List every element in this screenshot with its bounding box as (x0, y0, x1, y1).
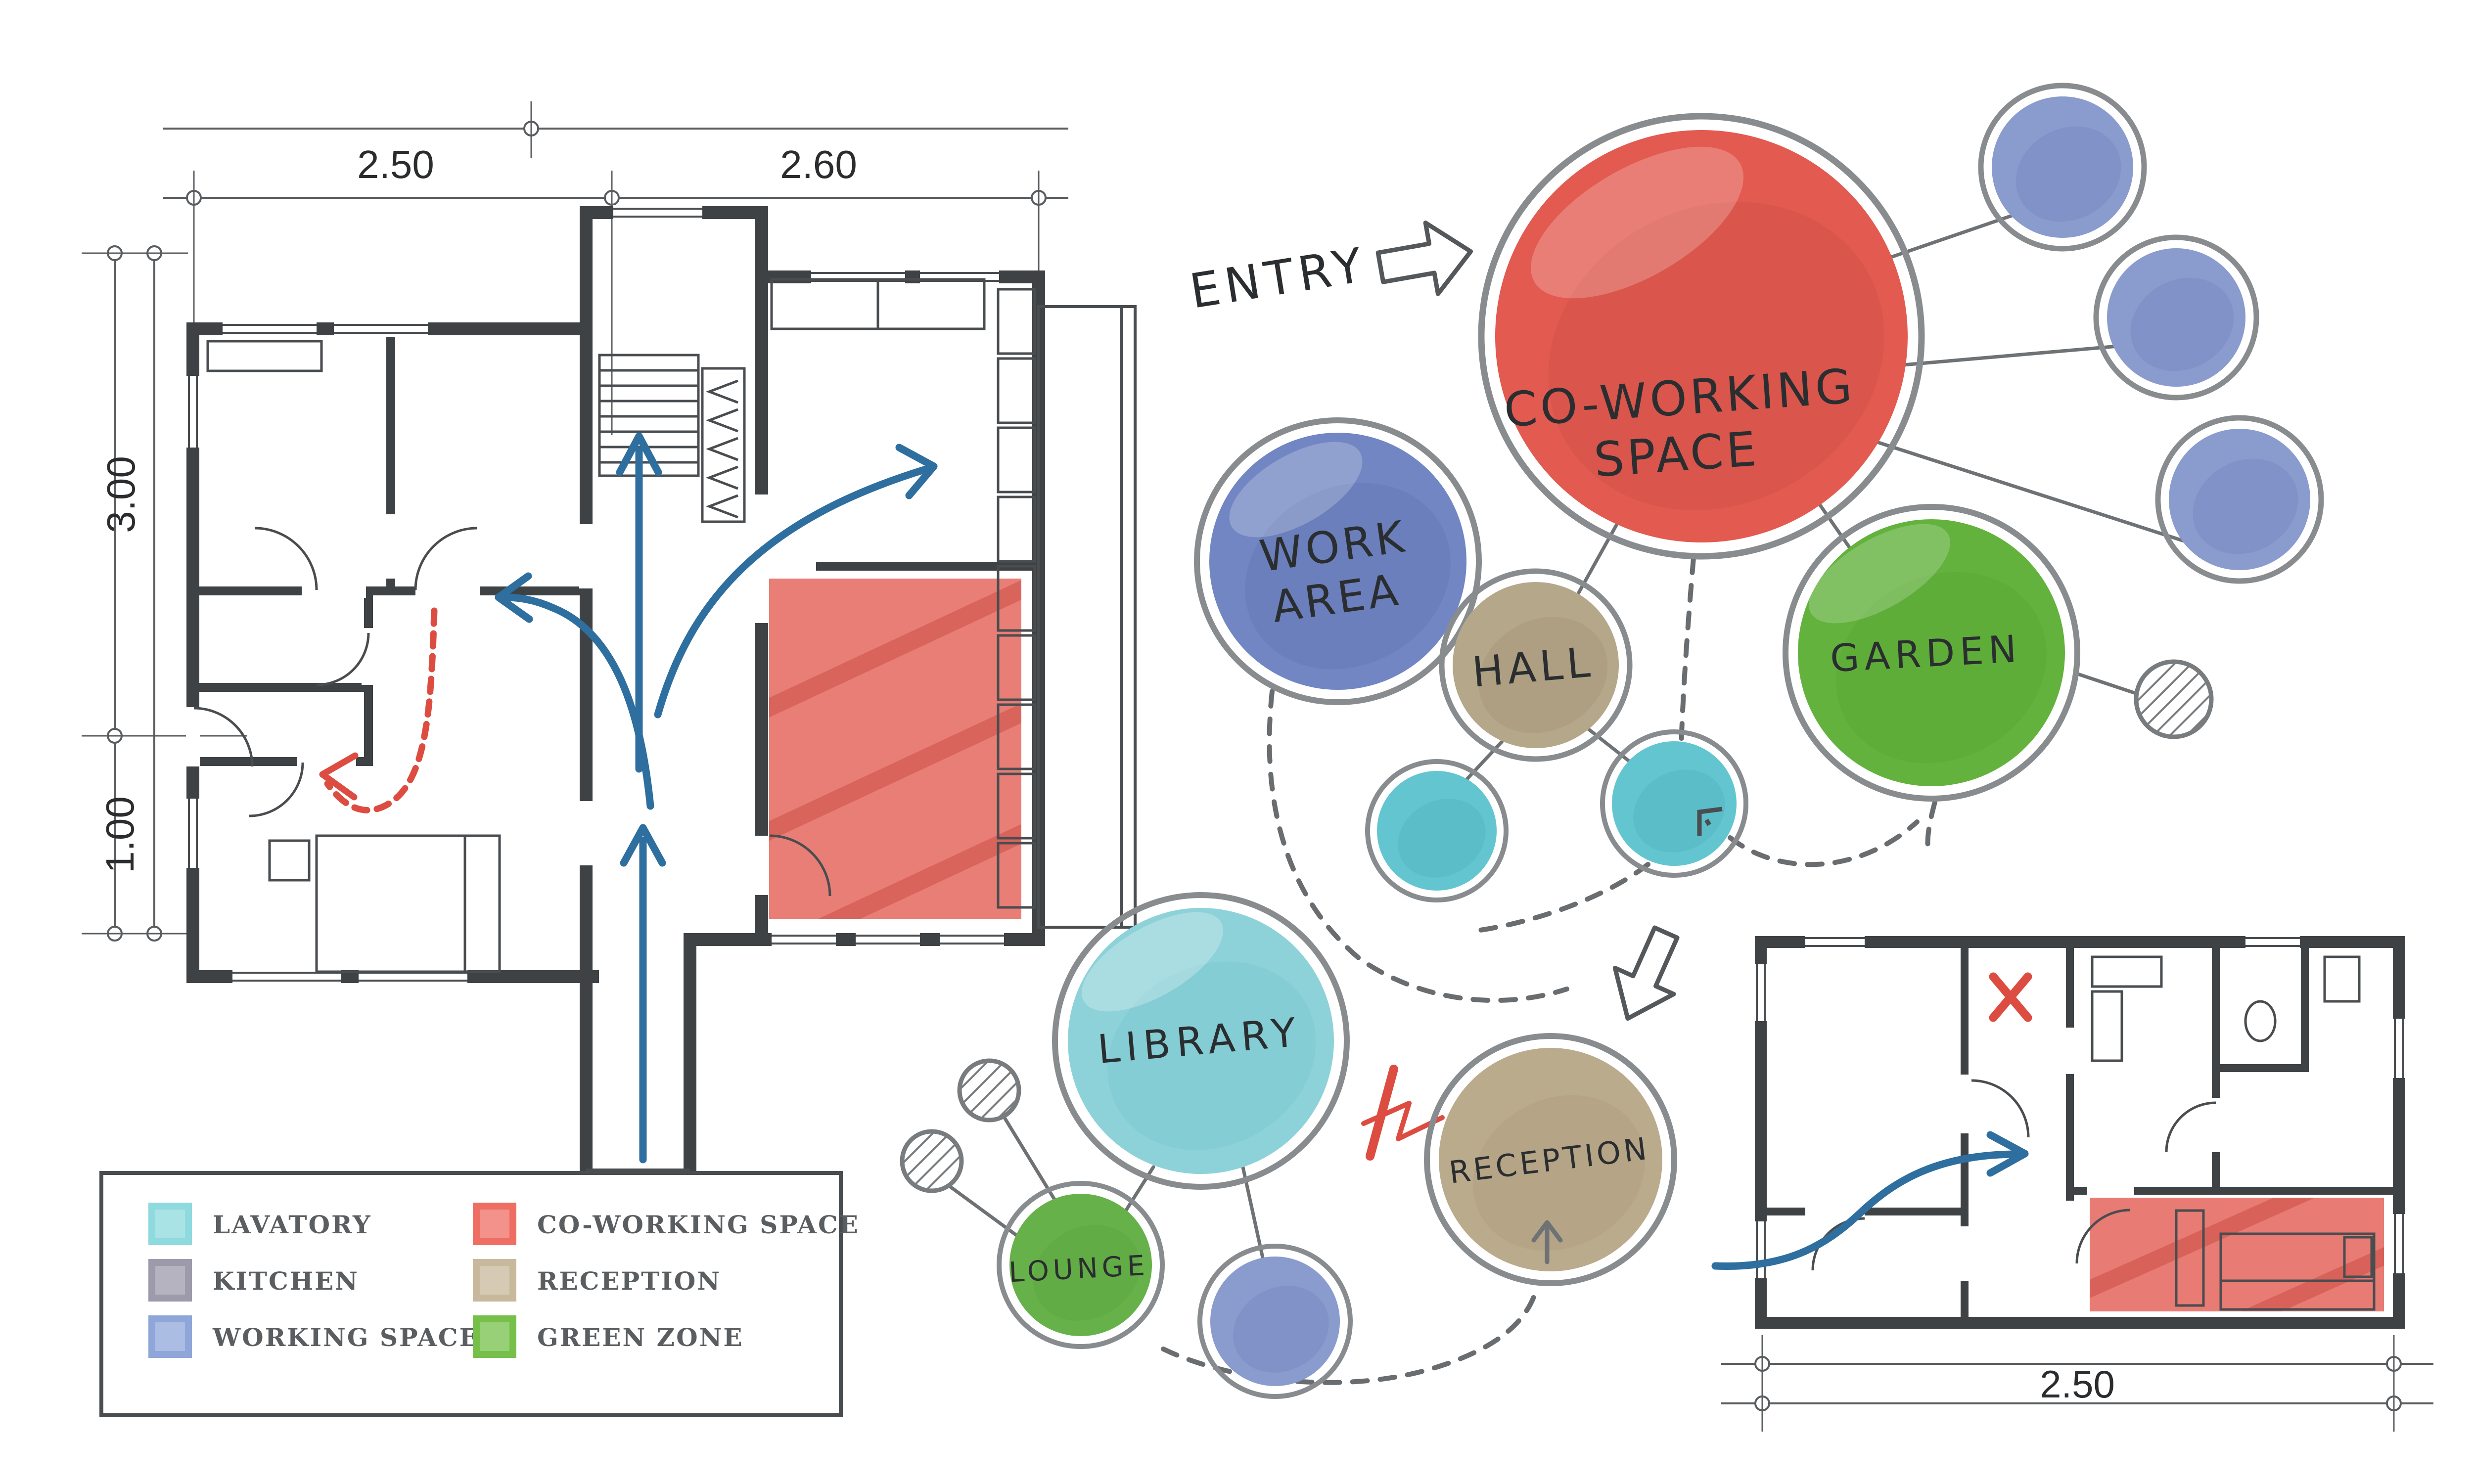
entry-label: ENTRY (1186, 237, 1371, 319)
legend-label-kitchen: KITCHEN (213, 1266, 359, 1296)
bubble-garden: GARDEN (1786, 504, 2080, 799)
hatched-circle-2 (902, 1131, 962, 1191)
dimension-top-left: 2.50 (357, 142, 434, 186)
legend-label-lavatory: LAVATORY (213, 1210, 372, 1239)
dimension-top-right: 2.60 (780, 142, 857, 186)
hatched-circle-1 (960, 1061, 1019, 1120)
diagram-canvas: 2.50 2.60 3.00 1.00 (0, 0, 2473, 1484)
dimension-left-upper: 3.00 (99, 456, 143, 533)
main-plan-door-gaps (186, 495, 816, 895)
main-plan-coworking-room-highlight (717, 559, 1113, 964)
small-floor-plan: 2.50 (1715, 934, 2473, 1432)
legend: LAVATORY KITCHEN WORKING SPACE CO-WORKIN… (101, 1173, 860, 1415)
legend-label-green-zone: GREEN ZONE (537, 1323, 743, 1352)
dimension-small-bottom: 2.50 (2040, 1362, 2115, 1406)
bubble-library: LIBRARY (1055, 892, 1349, 1187)
entry-arrow-icon (1374, 216, 1477, 303)
bubble-hall: HALL (1442, 571, 1630, 759)
hatched-circle-3 (2136, 662, 2211, 737)
down-arrow-icon (1599, 920, 1695, 1032)
legend-label-reception: RECEPTION (537, 1266, 721, 1296)
bubble-satellite-2 (2096, 237, 2256, 398)
legend-label-co-working-space: CO-WORKING SPACE (537, 1210, 860, 1239)
bubble-lavatory-right (1603, 732, 1746, 875)
small-plan-bottom-dimension: 2.50 (1721, 1335, 2433, 1432)
red-dashed-route (327, 611, 434, 810)
entry-annotation: ENTRY (1186, 216, 1477, 319)
legend-label-working-space: WORKING SPACE (212, 1323, 480, 1352)
rejected-x-mark (1993, 977, 2028, 1018)
bubble-satellite-3 (2158, 418, 2321, 581)
architectural-concept-sheet: 2.50 2.60 3.00 1.00 (0, 0, 2473, 1484)
main-floor-plan: 2.50 2.60 3.00 1.00 (82, 101, 1135, 1170)
bubble-reception: RECEPTION (1427, 1036, 1674, 1283)
left-flow-arrow (501, 597, 650, 806)
dimension-left-lower: 1.00 (98, 796, 142, 873)
co-working-label-line2: SPACE (1592, 421, 1761, 488)
bubble-working-small (1200, 1246, 1350, 1396)
bubble-lounge: LOUNGE (999, 1183, 1162, 1347)
bubble-co-working-space: CO-WORKING SPACE (1481, 116, 1939, 568)
staircase (599, 355, 744, 522)
bubble-lavatory-left (1368, 762, 1506, 900)
bubble-satellite-1 (1981, 86, 2144, 249)
